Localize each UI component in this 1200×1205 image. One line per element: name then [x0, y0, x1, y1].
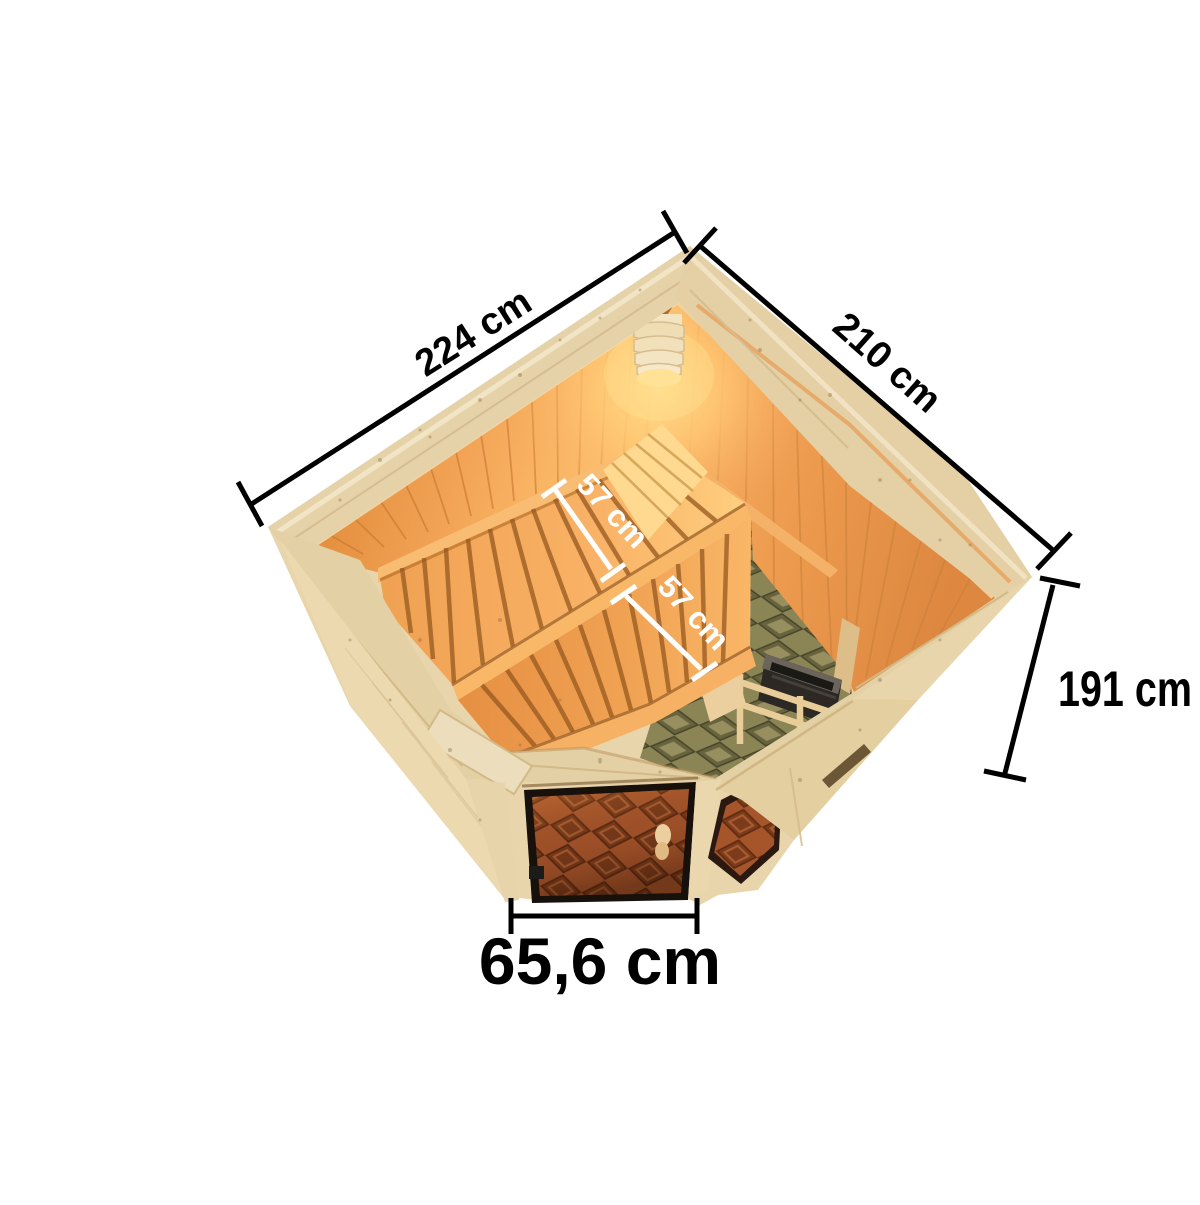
svg-text:191 cm: 191 cm	[1058, 661, 1192, 718]
svg-text:65,6 cm: 65,6 cm	[479, 924, 721, 998]
